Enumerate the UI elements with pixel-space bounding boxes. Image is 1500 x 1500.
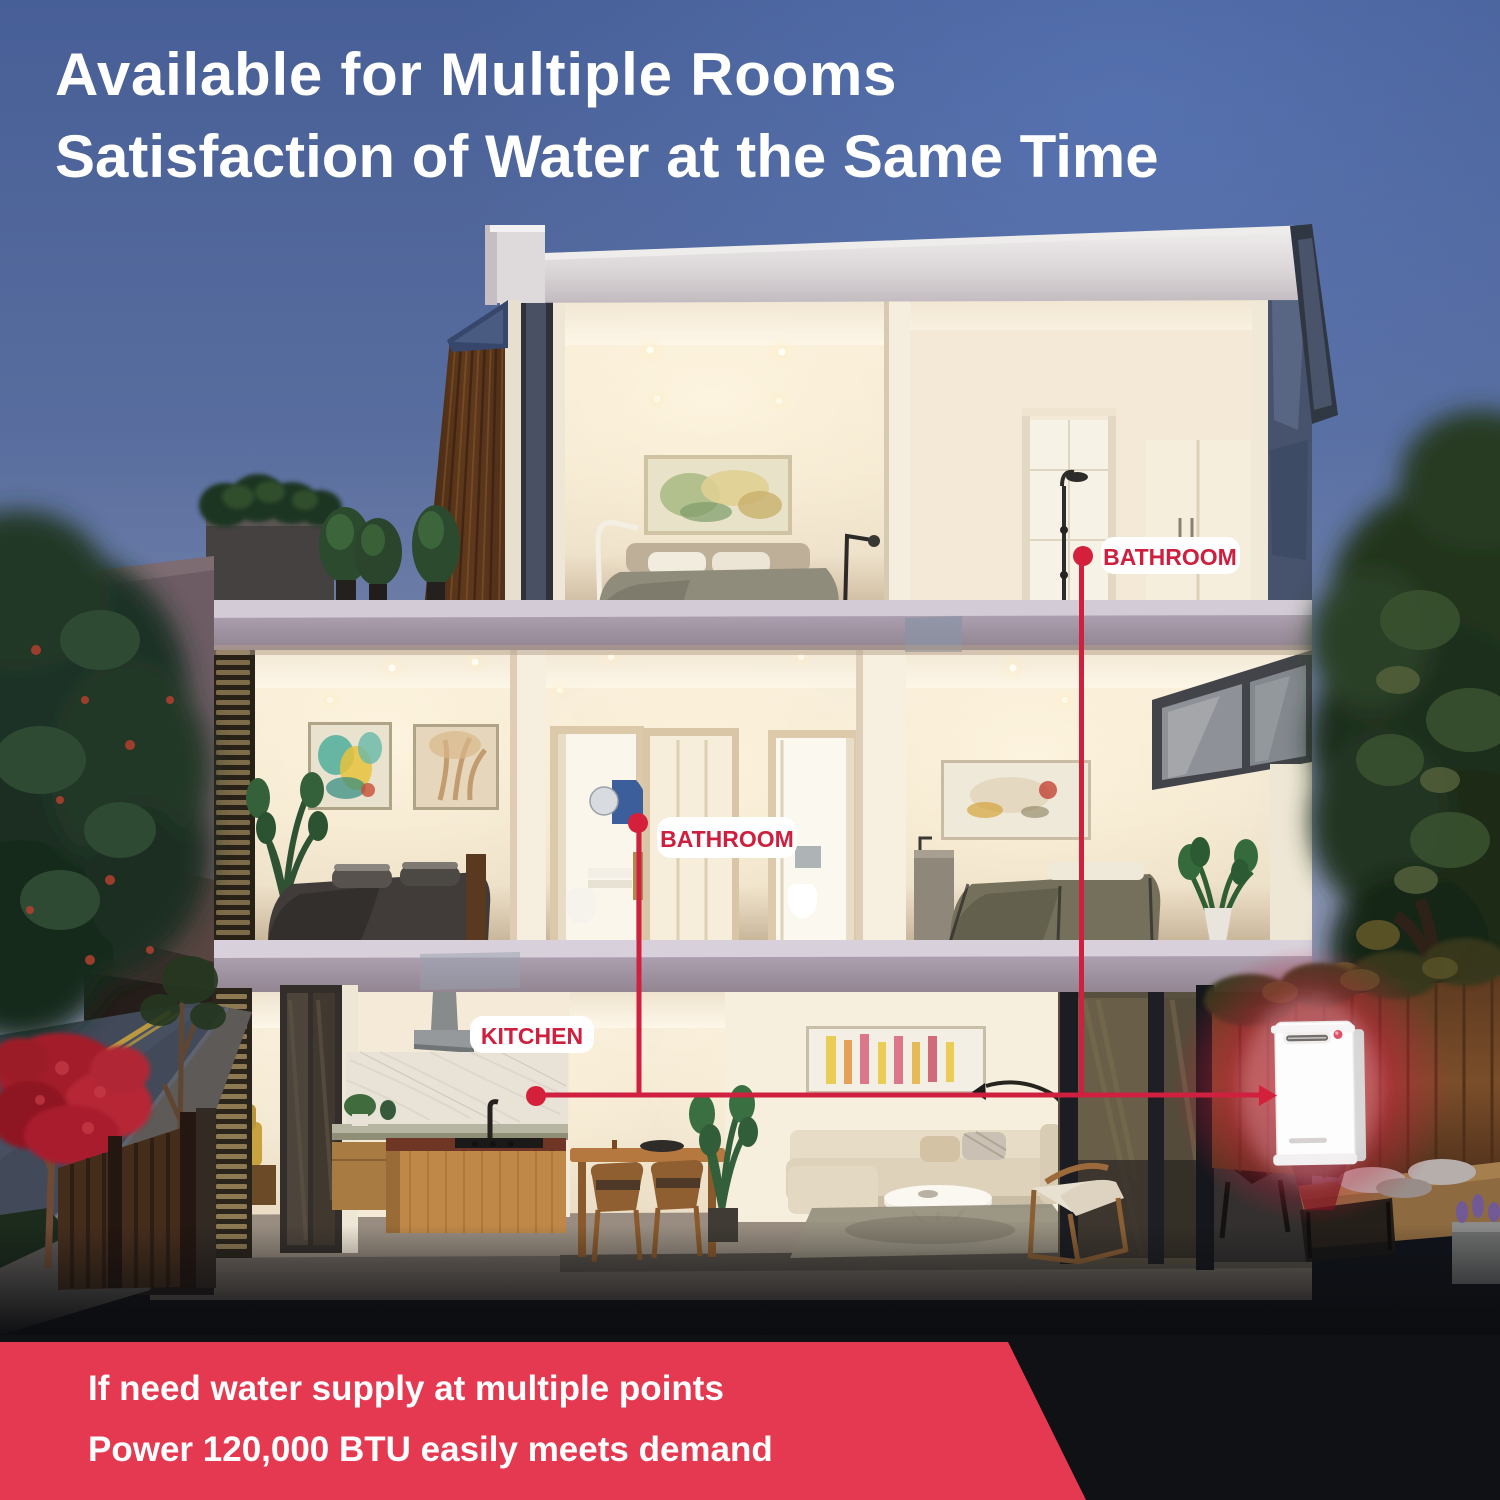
svg-text:Power 120,000 BTU easily meets: Power 120,000 BTU easily meets demand [88,1430,773,1469]
svg-text:BATHROOM: BATHROOM [660,826,794,852]
svg-text:Available for Multiple Rooms: Available for Multiple Rooms [55,41,897,108]
svg-text:If need water supply at multip: If need water supply at multiple points [88,1369,724,1408]
svg-text:Satisfaction of Water at the S: Satisfaction of Water at the Same Time [55,123,1159,190]
svg-text:KITCHEN: KITCHEN [481,1023,583,1049]
svg-text:BATHROOM: BATHROOM [1103,544,1237,570]
